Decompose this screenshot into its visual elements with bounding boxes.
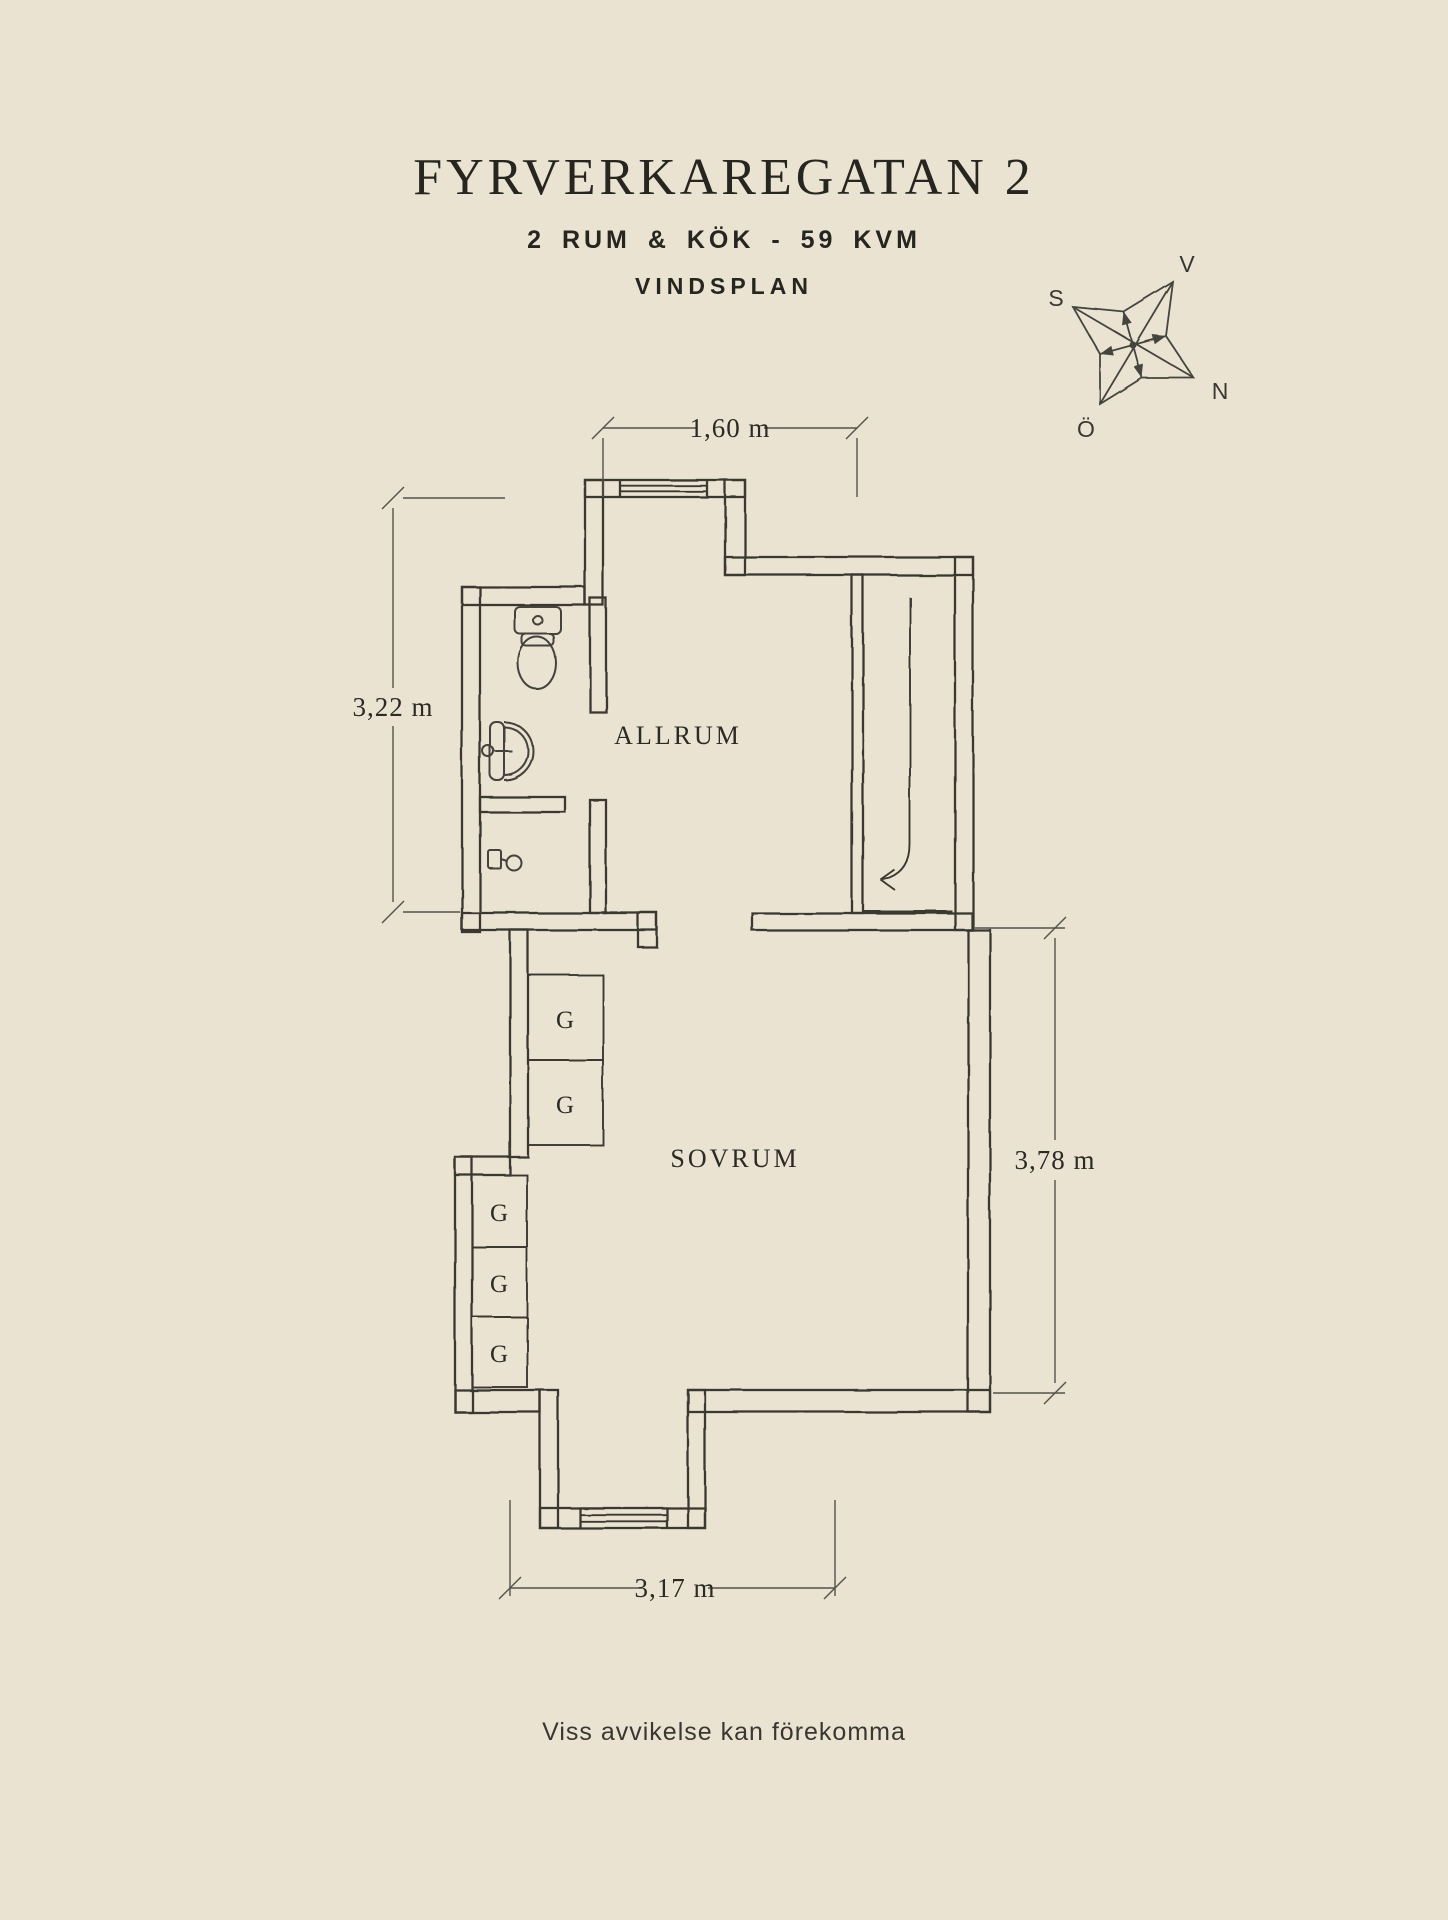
staircase (863, 597, 952, 911)
window-top-icon (620, 480, 707, 497)
closet-label: G (490, 1271, 508, 1298)
closet-label: G (490, 1200, 508, 1227)
dimension-bottom: 3,17 m (499, 1500, 846, 1603)
compass-label-west: V (1179, 251, 1195, 277)
floor-plan-page: FYRVERKAREGATAN 2 2 RUM & KÖK - 59 KVM V… (0, 0, 1448, 1920)
closet-label: G (556, 1092, 574, 1119)
closet-label: G (556, 1007, 574, 1034)
compass-rose-icon (1073, 282, 1194, 404)
dimension-top-label: 1,60 m (689, 413, 770, 443)
sink-icon (483, 722, 534, 780)
floor-plan-drawing: V S N Ö (0, 0, 1448, 1920)
compass-label-south: S (1048, 285, 1063, 311)
room-label-allrum: ALLRUM (614, 721, 742, 750)
window-bottom-icon (580, 1508, 667, 1528)
dimension-left: 3,22 m (352, 487, 505, 923)
stair-direction-arrow (881, 597, 910, 890)
dimension-right: 3,78 m (975, 917, 1096, 1404)
room-label-sovrum: SOVRUM (670, 1144, 799, 1173)
closets (472, 975, 603, 1387)
toilet-icon (515, 607, 561, 689)
compass-label-north: N (1212, 378, 1229, 404)
dimension-left-label: 3,22 m (352, 692, 433, 722)
dimension-bottom-label: 3,17 m (634, 1573, 715, 1603)
floor-drain-icon (488, 850, 522, 871)
compass-label-east: Ö (1077, 416, 1095, 442)
dimension-right-label: 3,78 m (1014, 1145, 1095, 1175)
closet-label: G (490, 1341, 508, 1368)
disclaimer-text: Viss avvikelse kan förekomma (0, 1718, 1448, 1747)
